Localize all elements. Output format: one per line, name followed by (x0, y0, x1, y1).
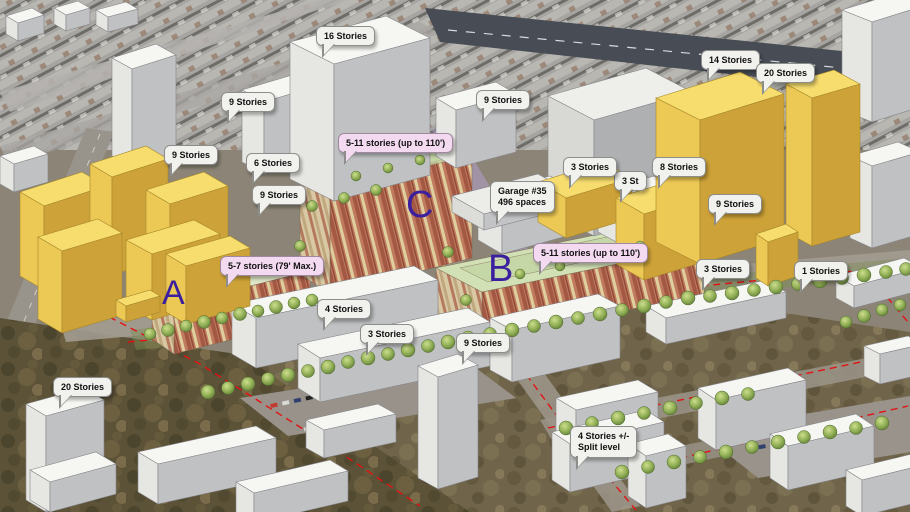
callout-9-stories-center: 9 Stories (476, 90, 530, 110)
callout-height-limit-c: 5-11 stories (up to 110') (338, 133, 453, 153)
callout-9-stories-top: 9 Stories (221, 92, 275, 112)
callout-4-stories: 4 Stories (317, 299, 371, 319)
site-marker-c: C (406, 186, 433, 224)
callout-6-stories: 6 Stories (246, 153, 300, 173)
callout-3-stories-garage: 3 Stories (563, 157, 617, 177)
callout-20-stories-left: 20 Stories (53, 377, 112, 397)
callout-9-stories-left: 9 Stories (164, 145, 218, 165)
callout-height-limit-b: 5-11 stories (up to 110') (533, 243, 648, 263)
callout-4-stories-split: 4 Stories +/- Split level (570, 426, 637, 458)
callout-3-stories-hidden: 3 St (614, 171, 647, 191)
callout-3-stories-right: 3 Stories (696, 259, 750, 279)
callout-9-stories-mid: 9 Stories (252, 185, 306, 205)
callout-8-stories: 8 Stories (652, 157, 706, 177)
callout-garage-35: Garage #35 496 spaces (490, 181, 555, 213)
callout-9-stories-lower: 9 Stories (456, 333, 510, 353)
callout-1-stories: 1 Stories (794, 261, 848, 281)
callout-14-stories: 14 Stories (701, 50, 760, 70)
annotation-overlay: 16 Stories 9 Stories 9 Stories 6 Stories… (0, 0, 910, 512)
site-marker-a: A (162, 276, 185, 310)
callout-height-limit-a: 5-7 stories (79' Max.) (220, 256, 324, 276)
callout-3-stories-mid: 3 Stories (360, 324, 414, 344)
callout-16-stories: 16 Stories (316, 26, 375, 46)
callout-20-stories-right: 20 Stories (756, 63, 815, 83)
site-marker-b: B (488, 250, 513, 288)
callout-9-stories-right: 9 Stories (708, 194, 762, 214)
model-viewport: 16 Stories 9 Stories 9 Stories 6 Stories… (0, 0, 910, 512)
